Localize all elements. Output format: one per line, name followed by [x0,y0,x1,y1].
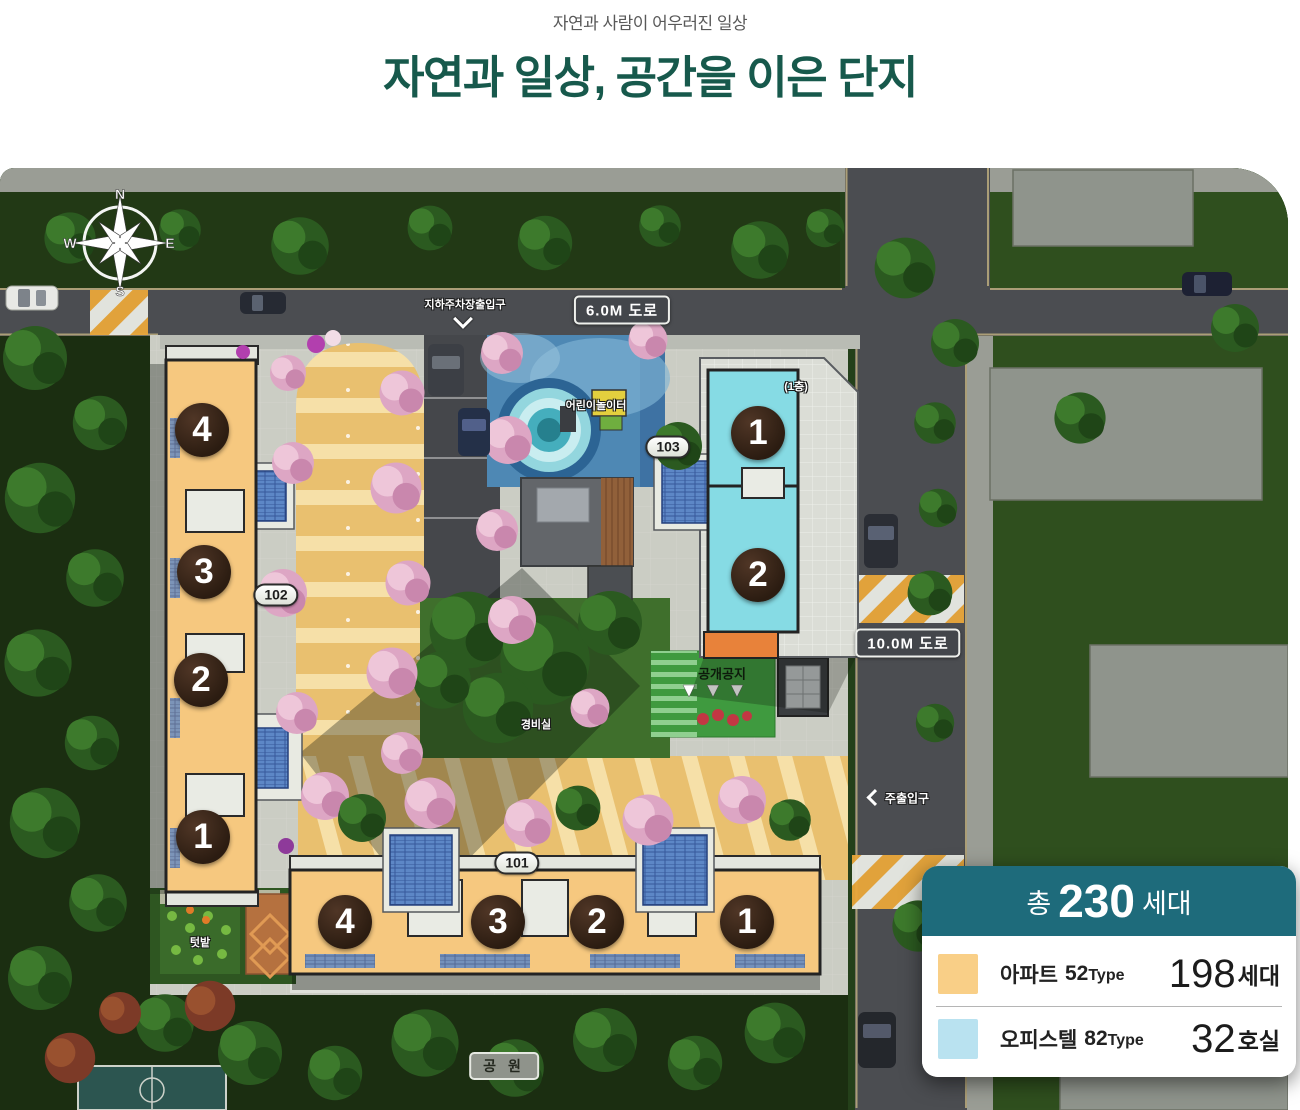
chevron-left-icon [866,789,883,806]
officetel-type: 82Type [1084,1027,1144,1051]
compass-w: W [63,235,77,251]
label-road-10m: 10.0M 도로 [855,629,960,658]
car [240,292,286,314]
page: 자연과 사람이 어우러진 일상 자연과 일상, 공간을 이은 단지 [0,0,1300,1110]
apartment-name: 아파트 [1000,959,1058,989]
unit-badge-101-2: 2 [570,895,624,949]
car [858,1012,896,1068]
label-playground: 어린이놀이터 [566,397,627,413]
legend-row-apartment: 아파트 52Type 198 세대 [922,942,1296,1006]
compass-n: N [115,186,125,202]
label-security-office: 경비실 [521,716,551,732]
car [6,286,58,310]
legend-body: 아파트 52Type 198 세대 오피스텔 82Type 32 호실 [922,936,1296,1077]
officetel-name: 오피스텔 [1000,1024,1077,1054]
legend-total: 총 230 세대 [922,866,1296,936]
label-park: 공 원 [469,1052,539,1080]
page-subtitle: 자연과 사람이 어우러진 일상 [0,9,1300,34]
building-label-102: 102 [253,584,298,607]
legend-panel: 총 230 세대 아파트 52Type 198 세대 오피스텔 82Type 3… [922,866,1296,1077]
unit-badge-101-1: 1 [720,895,774,949]
label-main-entrance: 주출입구 [869,790,929,807]
car [1182,272,1232,296]
car [428,344,464,396]
officetel-count-unit: 호실 [1238,1022,1280,1056]
page-header: 자연과 사람이 어우러진 일상 자연과 일상, 공간을 이은 단지 [0,0,1300,106]
officetel-swatch [938,1019,978,1059]
legend-total-count: 230 [1058,874,1135,928]
car [864,514,898,568]
label-first-floor: (1층) [784,378,808,394]
apartment-count: 198 [1169,952,1236,997]
car [458,408,490,456]
label-garden: 텃밭 [190,934,210,950]
legend-total-unit: 세대 [1142,882,1192,921]
unit-badge-103-1: 1 [731,406,785,460]
apartment-count-unit: 세대 [1238,957,1280,991]
compass-e: E [165,235,174,251]
apartment-type: 52Type [1065,962,1125,986]
unit-badge-102-4: 4 [175,403,229,457]
label-parking-entrance: 지하주차장출입구 [425,296,506,312]
sports-court [78,1066,226,1110]
legend-total-prefix: 총 [1026,882,1051,921]
unit-badge-101-4: 4 [318,895,372,949]
unit-badge-103-2: 2 [731,548,785,602]
building-label-101: 101 [494,852,539,875]
officetel-count: 32 [1191,1017,1236,1062]
label-public-space: 공개공지 [698,664,746,683]
unit-badge-102-2: 2 [174,653,228,707]
building-label-103: 103 [645,436,690,459]
label-road-6m: 6.0M 도로 [574,296,670,325]
apartment-swatch [938,954,978,994]
page-title: 자연과 일상, 공간을 이은 단지 [0,41,1300,106]
unit-badge-101-3: 3 [471,895,525,949]
compass-s: S [115,283,124,299]
unit-badge-102-3: 3 [177,545,231,599]
legend-row-officetel: 오피스텔 82Type 32 호실 [922,1007,1296,1071]
unit-badge-102-1: 1 [176,810,230,864]
